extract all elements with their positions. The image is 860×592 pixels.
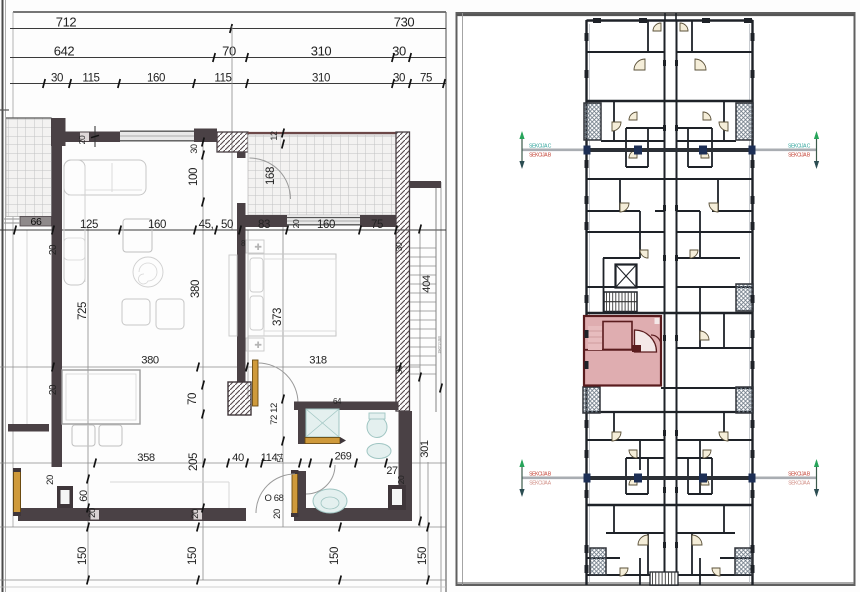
svg-text:20: 20: [48, 384, 59, 395]
svg-text:150: 150: [417, 547, 429, 565]
svg-text:373: 373: [272, 308, 284, 326]
svg-text:642: 642: [54, 44, 75, 59]
svg-text:40: 40: [232, 452, 244, 464]
svg-text:66: 66: [31, 216, 42, 228]
svg-text:83: 83: [258, 219, 270, 231]
svg-text:404: 404: [421, 275, 433, 293]
svg-text:20: 20: [87, 508, 98, 518]
svg-text:70: 70: [187, 393, 199, 405]
svg-text:SEKCIJA B: SEKCIJA B: [788, 153, 811, 159]
svg-text:318: 318: [309, 355, 327, 367]
svg-text:30: 30: [392, 44, 406, 59]
svg-text:168: 168: [265, 167, 277, 185]
svg-text:30: 30: [393, 73, 405, 85]
svg-text:✚: ✚: [254, 340, 262, 350]
svg-text:115: 115: [214, 73, 231, 85]
svg-text:150: 150: [77, 547, 89, 565]
svg-text:310: 310: [311, 44, 332, 59]
svg-text:115: 115: [82, 73, 99, 85]
svg-text:✚: ✚: [254, 242, 262, 252]
svg-text:75: 75: [371, 219, 383, 231]
svg-text:310: 310: [312, 73, 330, 85]
svg-text:SEKCIJA C: SEKCIJA C: [529, 144, 552, 150]
svg-text:150: 150: [329, 547, 341, 565]
svg-text:20: 20: [77, 135, 87, 144]
svg-text:160: 160: [147, 73, 165, 85]
svg-text:20: 20: [396, 475, 406, 484]
svg-text:30: 30: [189, 144, 199, 154]
svg-text:125: 125: [80, 219, 98, 231]
svg-text:712: 712: [56, 15, 77, 30]
svg-text:60: 60: [78, 490, 90, 502]
svg-text:27: 27: [386, 465, 398, 477]
svg-text:30: 30: [394, 242, 404, 251]
svg-text:O 68: O 68: [265, 493, 284, 504]
svg-text:205: 205: [188, 453, 200, 471]
svg-text:SEKCIJA A: SEKCIJA A: [788, 481, 810, 487]
svg-text:70: 70: [222, 44, 236, 59]
svg-text:30: 30: [51, 73, 63, 85]
svg-text:730: 730: [394, 15, 415, 30]
svg-text:301: 301: [419, 440, 431, 458]
svg-text:45,: 45,: [199, 219, 214, 231]
svg-text:160: 160: [317, 219, 335, 231]
svg-text:725: 725: [77, 302, 89, 320]
svg-text:20: 20: [45, 475, 56, 485]
svg-text:64: 64: [333, 397, 342, 406]
svg-text:20: 20: [190, 509, 201, 519]
svg-text:269: 269: [335, 451, 352, 463]
svg-text:19x17,2 / 28,6: 19x17,2 / 28,6: [438, 336, 442, 354]
svg-text:50: 50: [221, 219, 233, 231]
svg-text:380: 380: [141, 355, 159, 367]
svg-text:150: 150: [187, 547, 199, 565]
svg-text:12: 12: [269, 131, 279, 141]
svg-text:358: 358: [137, 452, 155, 464]
svg-text:72 12: 72 12: [269, 403, 280, 425]
svg-text:160: 160: [148, 219, 166, 231]
svg-text:SEKCIJA B: SEKCIJA B: [529, 472, 552, 478]
svg-text:20: 20: [48, 244, 59, 255]
svg-text:20: 20: [291, 219, 301, 228]
svg-text:30: 30: [394, 365, 404, 374]
svg-text:SEKCIJA C: SEKCIJA C: [788, 144, 811, 150]
svg-text:SEKCIJA B: SEKCIJA B: [788, 472, 811, 478]
svg-text:380: 380: [190, 280, 202, 298]
svg-text:SEKCIJA A: SEKCIJA A: [529, 481, 551, 487]
svg-text:100: 100: [188, 168, 200, 186]
svg-text:20: 20: [272, 509, 283, 519]
svg-text:54: 54: [275, 453, 285, 462]
svg-text:SEKCIJA B: SEKCIJA B: [529, 153, 552, 159]
svg-text:75: 75: [420, 73, 432, 85]
